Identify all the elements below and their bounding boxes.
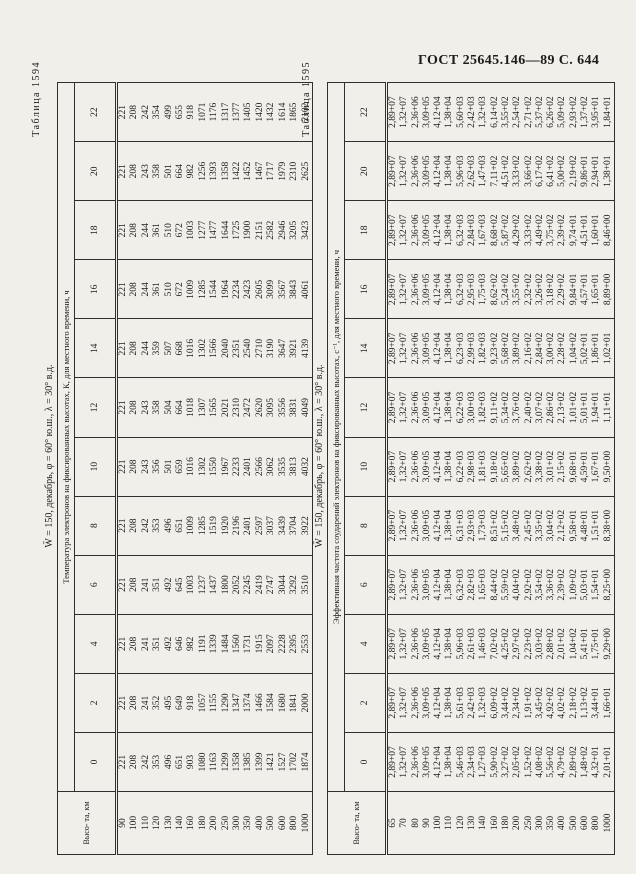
value-cell: 1420 bbox=[255, 83, 266, 142]
value-cell: 1915 bbox=[255, 614, 266, 673]
value-cell: 5,03+01 bbox=[580, 555, 591, 614]
table-row: 701,32+071,32+071,32+071,32+071,32+071,3… bbox=[399, 83, 410, 855]
value-cell: 1731 bbox=[243, 614, 254, 673]
value-cell: 2747 bbox=[266, 555, 277, 614]
value-cell: 1307 bbox=[198, 378, 209, 437]
value-cell: 5,56+02 bbox=[546, 732, 557, 791]
value-cell: 3,54+02 bbox=[535, 555, 546, 614]
value-cell: 2,23+02 bbox=[524, 614, 535, 673]
value-cell: 353 bbox=[152, 732, 163, 791]
table-row: 1605,90+026,09+027,02+028,44+028,51+029,… bbox=[490, 83, 501, 855]
table-row: 1609039189821003100910161018101610091003… bbox=[186, 83, 197, 855]
value-cell: 4,08+02 bbox=[535, 732, 546, 791]
value-cell: 243 bbox=[141, 437, 152, 496]
value-cell: 244 bbox=[141, 201, 152, 260]
table-title-1595: W̄ = 150, декабрь, φ = 60° ю.ш., λ = 30°… bbox=[313, 57, 326, 855]
value-cell: 1,32+07 bbox=[399, 732, 410, 791]
value-cell: 5,96+03 bbox=[456, 614, 467, 673]
value-cell: 2,36+06 bbox=[411, 319, 422, 378]
value-cell: 2,62+03 bbox=[467, 142, 478, 201]
altitude-cell: 180 bbox=[198, 792, 209, 855]
time-header-14: 14 bbox=[345, 319, 387, 378]
value-cell: 2,36+06 bbox=[411, 673, 422, 732]
value-cell: 4,49+02 bbox=[535, 201, 546, 260]
value-cell: 2,89+07 bbox=[387, 378, 400, 437]
value-cell: 3,55+02 bbox=[512, 260, 523, 319]
value-cell: 1,75+01 bbox=[591, 614, 602, 673]
value-cell: 655 bbox=[175, 83, 186, 142]
value-cell: 221 bbox=[117, 614, 130, 673]
value-cell: 1,04+02 bbox=[569, 319, 580, 378]
value-cell: 2,62+02 bbox=[524, 437, 535, 496]
value-cell: 1347 bbox=[232, 673, 243, 732]
value-cell: 1,67+03 bbox=[478, 201, 489, 260]
time-header-row: 0246810121416182022 bbox=[345, 83, 387, 855]
value-cell: 2,29+02 bbox=[557, 260, 568, 319]
value-cell: 1,38+04 bbox=[444, 496, 455, 555]
value-cell: 221 bbox=[117, 496, 130, 555]
gost-table-1594: Высо- та, км Температура электронов на ф… bbox=[57, 82, 313, 855]
value-cell: 1,32+03 bbox=[478, 83, 489, 142]
value-cell: 6,32+03 bbox=[456, 201, 467, 260]
value-cell: 3556 bbox=[278, 378, 289, 437]
value-cell: 1,01+02 bbox=[569, 378, 580, 437]
value-cell: 241 bbox=[141, 673, 152, 732]
value-cell: 8,25+00 bbox=[603, 555, 615, 614]
value-cell: 492 bbox=[164, 614, 175, 673]
value-cell: 4,57+01 bbox=[580, 260, 591, 319]
value-cell: 2,95+03 bbox=[467, 260, 478, 319]
value-cell: 2582 bbox=[266, 201, 277, 260]
value-cell: 242 bbox=[141, 83, 152, 142]
table-row: 10002,01+011,66+019,29+008,25+008,38+009… bbox=[603, 83, 615, 855]
value-cell: 1,02+01 bbox=[603, 319, 615, 378]
value-cell: 1920 bbox=[221, 496, 232, 555]
value-cell: 3,95+01 bbox=[591, 83, 602, 142]
value-cell: 6,31+03 bbox=[456, 496, 467, 555]
value-cell: 2,15+02 bbox=[557, 437, 568, 496]
value-cell: 1358 bbox=[232, 732, 243, 791]
time-header-4: 4 bbox=[345, 614, 387, 673]
value-cell: 1550 bbox=[209, 437, 220, 496]
value-cell: 1009 bbox=[186, 496, 197, 555]
value-cell: 6,17+02 bbox=[535, 142, 546, 201]
value-cell: 3,04+02 bbox=[546, 496, 557, 555]
time-header-0: 0 bbox=[345, 732, 387, 791]
value-cell: 510 bbox=[164, 260, 175, 319]
value-cell: 2,40+02 bbox=[524, 378, 535, 437]
value-cell: 1452 bbox=[243, 142, 254, 201]
value-cell: 651 bbox=[175, 496, 186, 555]
value-cell: 8,51+02 bbox=[490, 496, 501, 555]
value-cell: 221 bbox=[117, 437, 130, 496]
value-cell: 1285 bbox=[198, 260, 209, 319]
value-cell: 5,61+03 bbox=[456, 673, 467, 732]
value-cell: 4,12+04 bbox=[433, 83, 444, 142]
value-cell: 9,58+01 bbox=[569, 496, 580, 555]
value-cell: 1,38+04 bbox=[444, 673, 455, 732]
value-cell: 668 bbox=[175, 319, 186, 378]
value-cell: 1290 bbox=[221, 673, 232, 732]
value-cell: 208 bbox=[129, 732, 140, 791]
value-cell: 4,12+04 bbox=[433, 496, 444, 555]
value-cell: 5,15+02 bbox=[501, 496, 512, 555]
altitude-cell: 90 bbox=[422, 792, 433, 855]
table-row: 1101,38+041,38+041,38+041,38+041,38+041,… bbox=[444, 83, 455, 855]
value-cell: 3,45+02 bbox=[535, 673, 546, 732]
value-cell: 2566 bbox=[255, 437, 266, 496]
value-cell: 4,59+01 bbox=[580, 437, 591, 496]
value-cell: 208 bbox=[129, 260, 140, 319]
value-cell: 1003 bbox=[186, 201, 197, 260]
value-cell: 2,13+02 bbox=[557, 378, 568, 437]
value-cell: 1,73+03 bbox=[478, 496, 489, 555]
value-cell: 918 bbox=[186, 83, 197, 142]
value-cell: 1256 bbox=[198, 142, 209, 201]
value-cell: 2228 bbox=[278, 614, 289, 673]
value-cell: 2,36+06 bbox=[411, 201, 422, 260]
value-cell: 1,38+04 bbox=[444, 732, 455, 791]
time-header-10: 10 bbox=[345, 437, 387, 496]
table-row: 90221221221221221221221221221221221221 bbox=[117, 83, 130, 855]
value-cell: 9,11+02 bbox=[490, 378, 501, 437]
value-cell: 358 bbox=[152, 142, 163, 201]
value-cell: 5,41+01 bbox=[580, 614, 591, 673]
value-cell: 7,02+02 bbox=[490, 614, 501, 673]
value-cell: 649 bbox=[175, 673, 186, 732]
time-header-8: 8 bbox=[75, 496, 117, 555]
value-cell: 354 bbox=[152, 83, 163, 142]
value-cell: 4,32+01 bbox=[591, 732, 602, 791]
value-cell: 5,87+02 bbox=[501, 201, 512, 260]
value-cell: 208 bbox=[129, 555, 140, 614]
value-cell: 1285 bbox=[198, 496, 209, 555]
altitude-header: Высо- та, км bbox=[328, 792, 387, 855]
time-header-6: 6 bbox=[75, 555, 117, 614]
value-cell: 2540 bbox=[243, 319, 254, 378]
value-cell: 3,00+02 bbox=[546, 319, 557, 378]
value-cell: 2419 bbox=[255, 555, 266, 614]
altitude-cell: 800 bbox=[591, 792, 602, 855]
table-label-1595: Таблица 1595 bbox=[300, 57, 313, 855]
altitude-cell: 200 bbox=[512, 792, 523, 855]
value-cell: 2,61+03 bbox=[467, 614, 478, 673]
value-cell: 3292 bbox=[289, 555, 300, 614]
value-cell: 1865 bbox=[289, 83, 300, 142]
value-cell: 2401 bbox=[243, 437, 254, 496]
value-cell: 1,65+01 bbox=[591, 260, 602, 319]
value-cell: 1018 bbox=[186, 378, 197, 437]
value-cell: 664 bbox=[175, 378, 186, 437]
value-cell: 9,29+00 bbox=[603, 614, 615, 673]
value-cell: 1614 bbox=[278, 83, 289, 142]
value-cell: 1302 bbox=[198, 437, 209, 496]
value-cell: 4,12+04 bbox=[433, 260, 444, 319]
value-cell: 1,32+07 bbox=[399, 319, 410, 378]
value-cell: 1,66+01 bbox=[603, 673, 615, 732]
altitude-cell: 140 bbox=[175, 792, 186, 855]
value-cell: 3,36+02 bbox=[546, 555, 557, 614]
value-cell: 208 bbox=[129, 319, 140, 378]
table-row: 1205,46+035,61+035,96+036,32+036,31+036,… bbox=[456, 83, 467, 855]
value-cell: 1016 bbox=[186, 437, 197, 496]
value-cell: 3,09+05 bbox=[422, 319, 433, 378]
value-cell: 2097 bbox=[266, 614, 277, 673]
value-cell: 1339 bbox=[209, 614, 220, 673]
value-cell: 2,01+01 bbox=[603, 732, 615, 791]
value-cell: 496 bbox=[164, 496, 175, 555]
value-cell: 208 bbox=[129, 496, 140, 555]
value-cell: 8,38+00 bbox=[603, 496, 615, 555]
value-cell: 2,36+06 bbox=[411, 496, 422, 555]
value-cell: 3843 bbox=[289, 260, 300, 319]
value-cell: 351 bbox=[152, 555, 163, 614]
value-cell: 3099 bbox=[266, 260, 277, 319]
altitude-cell: 120 bbox=[456, 792, 467, 855]
value-cell: 2,42+03 bbox=[467, 673, 478, 732]
altitude-cell: 350 bbox=[546, 792, 557, 855]
value-cell: 5,09+02 bbox=[557, 83, 568, 142]
value-cell: 2,36+06 bbox=[411, 83, 422, 142]
value-cell: 1,37+02 bbox=[580, 83, 591, 142]
value-cell: 221 bbox=[117, 142, 130, 201]
value-cell: 1,51+01 bbox=[591, 496, 602, 555]
value-cell: 495 bbox=[164, 673, 175, 732]
value-cell: 2,42+03 bbox=[467, 83, 478, 142]
value-cell: 1,82+03 bbox=[478, 378, 489, 437]
value-cell: 3,09+05 bbox=[422, 142, 433, 201]
value-cell: 1277 bbox=[198, 201, 209, 260]
value-cell: 1057 bbox=[198, 673, 209, 732]
value-cell: 2,19+02 bbox=[569, 142, 580, 201]
table-title-1594: W̄ = 150, декабрь, φ = 60° ю.ш., λ = 30°… bbox=[43, 57, 56, 855]
value-cell: 2605 bbox=[255, 260, 266, 319]
table-row: 6001,48+021,13+025,41+015,03+014,48+014,… bbox=[580, 83, 591, 855]
time-header-12: 12 bbox=[345, 378, 387, 437]
table-row: 1004,12+044,12+044,12+044,12+044,12+044,… bbox=[433, 83, 444, 855]
value-cell: 1800 bbox=[221, 555, 232, 614]
altitude-cell: 65 bbox=[387, 792, 400, 855]
value-cell: 1358 bbox=[221, 142, 232, 201]
value-cell: 3,09+05 bbox=[422, 673, 433, 732]
value-cell: 2,54+02 bbox=[512, 83, 523, 142]
value-cell: 1405 bbox=[243, 83, 254, 142]
value-cell: 5,01+01 bbox=[580, 378, 591, 437]
value-cell: 3037 bbox=[266, 496, 277, 555]
table-row: 2001163115513391437151915501565156615441… bbox=[209, 83, 220, 855]
value-cell: 3,27+02 bbox=[501, 732, 512, 791]
value-cell: 2310 bbox=[289, 142, 300, 201]
value-cell: 2,28+02 bbox=[557, 319, 568, 378]
value-cell: 1,38+01 bbox=[603, 142, 615, 201]
value-cell: 3,09+05 bbox=[422, 614, 433, 673]
value-cell: 2620 bbox=[255, 378, 266, 437]
value-cell: 651 bbox=[175, 732, 186, 791]
table-row: 4001399146619152419259725662620271026052… bbox=[255, 83, 266, 855]
value-cell: 1,32+07 bbox=[399, 142, 410, 201]
time-header-16: 16 bbox=[345, 260, 387, 319]
value-cell: 1,46+03 bbox=[478, 614, 489, 673]
table-row: 3505,56+024,92+022,88+023,36+023,04+023,… bbox=[546, 83, 557, 855]
value-cell: 903 bbox=[186, 732, 197, 791]
table-row: 1803,27+023,44+024,25+025,59+025,15+025,… bbox=[501, 83, 512, 855]
value-cell: 1,32+07 bbox=[399, 378, 410, 437]
value-cell: 1,09+02 bbox=[569, 555, 580, 614]
value-cell: 1,32+07 bbox=[399, 555, 410, 614]
value-cell: 1900 bbox=[243, 201, 254, 260]
value-cell: 1544 bbox=[209, 260, 220, 319]
value-cell: 244 bbox=[141, 260, 152, 319]
value-cell: 2,89+07 bbox=[387, 496, 400, 555]
value-cell: 1584 bbox=[266, 673, 277, 732]
time-header-16: 16 bbox=[75, 260, 117, 319]
value-cell: 3,09+05 bbox=[422, 496, 433, 555]
value-cell: 3,26+02 bbox=[535, 260, 546, 319]
value-cell: 8,68+02 bbox=[490, 201, 501, 260]
value-cell: 2,93+02 bbox=[569, 83, 580, 142]
value-cell: 9,74+01 bbox=[569, 201, 580, 260]
value-cell: 3095 bbox=[266, 378, 277, 437]
time-header-22: 22 bbox=[75, 83, 117, 142]
value-cell: 5,46+03 bbox=[456, 732, 467, 791]
altitude-cell: 130 bbox=[467, 792, 478, 855]
value-cell: 2,36+06 bbox=[411, 614, 422, 673]
value-cell: 3,89+02 bbox=[512, 319, 523, 378]
altitude-cell: 90 bbox=[117, 792, 130, 855]
value-cell: 4,92+02 bbox=[546, 673, 557, 732]
value-cell: 1,27+03 bbox=[478, 732, 489, 791]
value-cell: 646 bbox=[175, 614, 186, 673]
value-cell: 5,02+01 bbox=[580, 319, 591, 378]
value-cell: 4,02+02 bbox=[557, 673, 568, 732]
document-page: ГОСТ 25645.146—89 С. 644 Таблица 1594 W̄… bbox=[0, 0, 636, 874]
value-cell: 1422 bbox=[232, 142, 243, 201]
value-cell: 492 bbox=[164, 555, 175, 614]
value-cell: 3567 bbox=[278, 260, 289, 319]
time-header-12: 12 bbox=[75, 378, 117, 437]
value-cell: 1191 bbox=[198, 614, 209, 673]
value-cell: 2,89+07 bbox=[387, 260, 400, 319]
value-cell: 4,12+04 bbox=[433, 142, 444, 201]
value-cell: 3,09+05 bbox=[422, 201, 433, 260]
value-cell: 1477 bbox=[209, 201, 220, 260]
table-1595-rotated-block: Таблица 1595 W̄ = 150, декабрь, φ = 60° … bbox=[300, 57, 610, 855]
value-cell: 2,86+02 bbox=[546, 378, 557, 437]
altitude-cell: 600 bbox=[580, 792, 591, 855]
table-row: 3501385137417312245240124012472254024231… bbox=[243, 83, 254, 855]
value-cell: 221 bbox=[117, 378, 130, 437]
value-cell: 1393 bbox=[209, 142, 220, 201]
table-row: 5002,89+022,18+021,04+021,09+029,58+019,… bbox=[569, 83, 580, 855]
value-cell: 510 bbox=[164, 201, 175, 260]
altitude-cell: 100 bbox=[129, 792, 140, 855]
value-cell: 221 bbox=[117, 319, 130, 378]
value-cell: 351 bbox=[152, 614, 163, 673]
value-cell: 1,32+07 bbox=[399, 201, 410, 260]
table-row: 2501299129014841800192019672021204019641… bbox=[221, 83, 232, 855]
table-row: 100208208208208208208208208208208208208 bbox=[129, 83, 140, 855]
value-cell: 3,09+05 bbox=[422, 378, 433, 437]
value-cell: 3,66+02 bbox=[524, 142, 535, 201]
value-cell: 1317 bbox=[221, 83, 232, 142]
value-cell: 1527 bbox=[278, 732, 289, 791]
value-cell: 2,84+03 bbox=[467, 201, 478, 260]
table-row: 1401,27+031,32+031,46+031,65+031,73+031,… bbox=[478, 83, 489, 855]
value-cell: 6,32+03 bbox=[456, 555, 467, 614]
table-body: 9022122122122122122122122122122122122110… bbox=[117, 83, 313, 855]
value-cell: 3190 bbox=[266, 319, 277, 378]
value-cell: 1964 bbox=[221, 260, 232, 319]
value-cell: 6,09+02 bbox=[490, 673, 501, 732]
table-body: 652,89+072,89+072,89+072,89+072,89+072,8… bbox=[387, 83, 615, 855]
value-cell: 1,32+07 bbox=[399, 496, 410, 555]
altitude-cell: 110 bbox=[141, 792, 152, 855]
value-cell: 1484 bbox=[221, 614, 232, 673]
value-cell: 3647 bbox=[278, 319, 289, 378]
value-cell: 1565 bbox=[209, 378, 220, 437]
value-cell: 352 bbox=[152, 673, 163, 732]
value-cell: 2,89+07 bbox=[387, 673, 400, 732]
value-cell: 208 bbox=[129, 201, 140, 260]
value-cell: 242 bbox=[141, 732, 152, 791]
value-cell: 918 bbox=[186, 673, 197, 732]
time-header-20: 20 bbox=[345, 142, 387, 201]
value-cell: 664 bbox=[175, 142, 186, 201]
gost-table-1595: Высо- та, км Эффективная частота соударе… bbox=[327, 82, 615, 855]
value-cell: 4,12+04 bbox=[433, 437, 444, 496]
value-cell: 1385 bbox=[243, 732, 254, 791]
value-cell: 3,03+02 bbox=[535, 614, 546, 673]
value-cell: 2196 bbox=[232, 496, 243, 555]
value-cell: 1,13+02 bbox=[580, 673, 591, 732]
value-cell: 6,22+03 bbox=[456, 437, 467, 496]
value-cell: 1466 bbox=[255, 673, 266, 732]
value-cell: 2401 bbox=[243, 496, 254, 555]
value-cell: 2,34+03 bbox=[467, 732, 478, 791]
value-cell: 5,59+02 bbox=[501, 555, 512, 614]
value-cell: 2395 bbox=[289, 614, 300, 673]
value-cell: 4,12+04 bbox=[433, 555, 444, 614]
value-cell: 2710 bbox=[255, 319, 266, 378]
value-cell: 221 bbox=[117, 83, 130, 142]
value-cell: 2,34+02 bbox=[512, 673, 523, 732]
altitude-cell: 120 bbox=[152, 792, 163, 855]
value-cell: 359 bbox=[152, 319, 163, 378]
value-cell: 1841 bbox=[289, 673, 300, 732]
value-cell: 1163 bbox=[209, 732, 220, 791]
value-cell: 1725 bbox=[232, 201, 243, 260]
value-cell: 2040 bbox=[221, 319, 232, 378]
value-cell: 2,36+06 bbox=[411, 260, 422, 319]
value-cell: 1680 bbox=[278, 673, 289, 732]
altitude-cell: 130 bbox=[164, 792, 175, 855]
value-cell: 3,44+01 bbox=[591, 673, 602, 732]
value-cell: 1,32+07 bbox=[399, 260, 410, 319]
value-cell: 3,09+05 bbox=[422, 260, 433, 319]
value-cell: 1071 bbox=[198, 83, 209, 142]
table-header: Высо- та, км Температура электронов на ф… bbox=[58, 83, 117, 855]
table-row: 130496495492492496501504507510510501499 bbox=[164, 83, 175, 855]
value-cell: 4,48+01 bbox=[580, 496, 591, 555]
value-cell: 2,89+07 bbox=[387, 319, 400, 378]
value-cell: 1,38+04 bbox=[444, 555, 455, 614]
value-cell: 3,01+02 bbox=[546, 437, 557, 496]
value-cell: 5,90+02 bbox=[490, 732, 501, 791]
value-cell: 3,44+02 bbox=[501, 673, 512, 732]
value-cell: 242 bbox=[141, 496, 152, 555]
value-cell: 3,89+02 bbox=[512, 437, 523, 496]
value-cell: 6,32+03 bbox=[456, 260, 467, 319]
